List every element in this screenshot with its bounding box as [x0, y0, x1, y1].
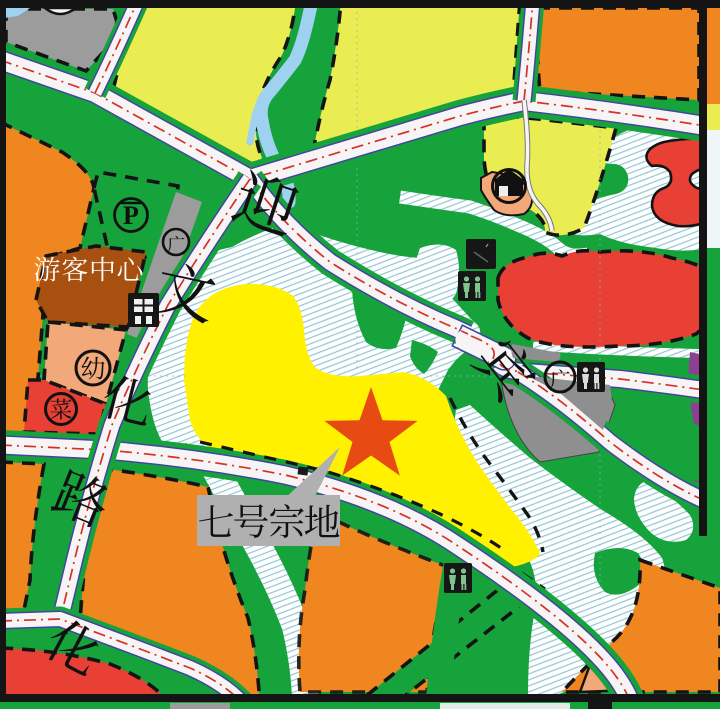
svg-text:P: P — [123, 201, 139, 230]
